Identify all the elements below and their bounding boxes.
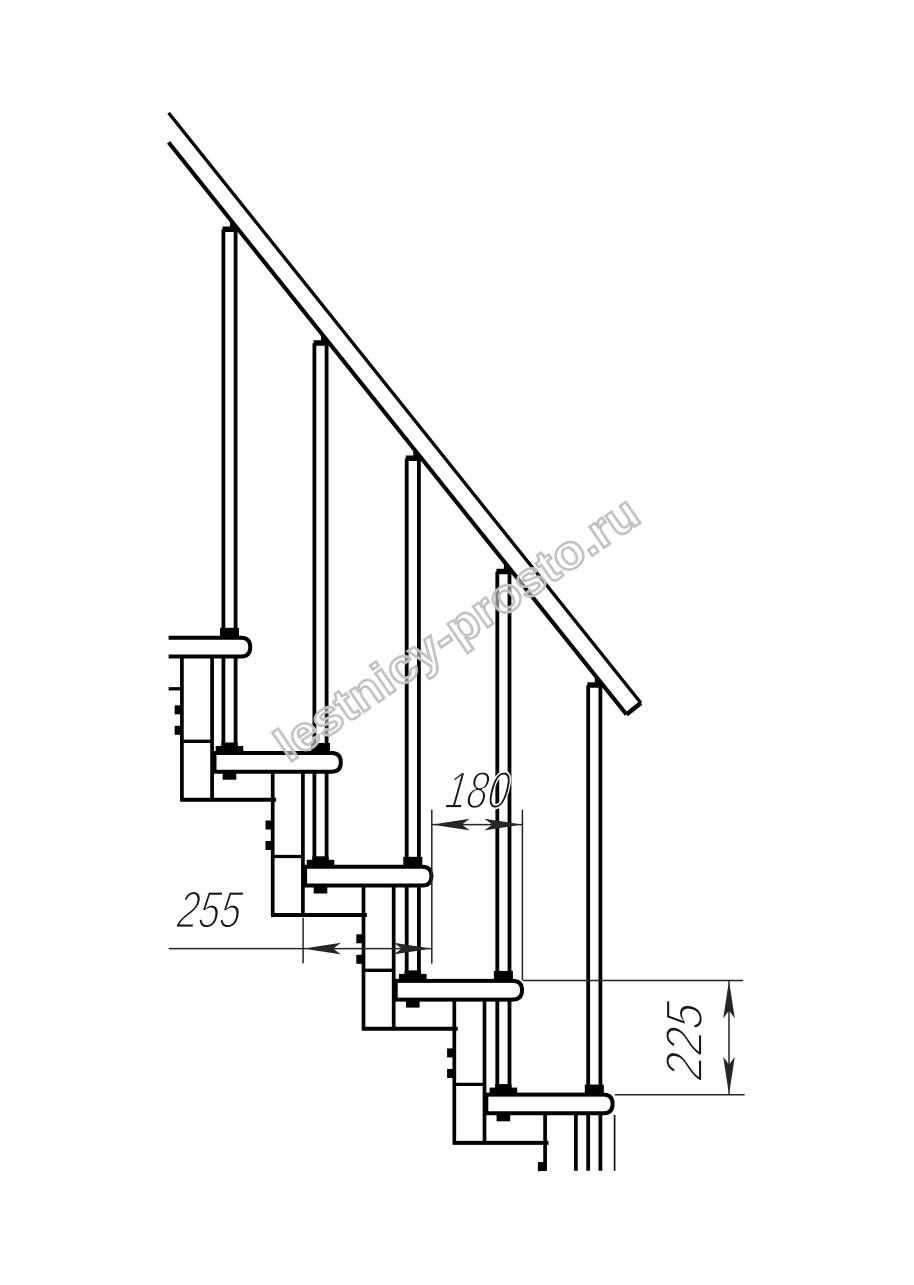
svg-text:255: 255 [174,882,247,940]
svg-text:225: 225 [656,998,714,1084]
svg-text:180: 180 [442,762,513,820]
